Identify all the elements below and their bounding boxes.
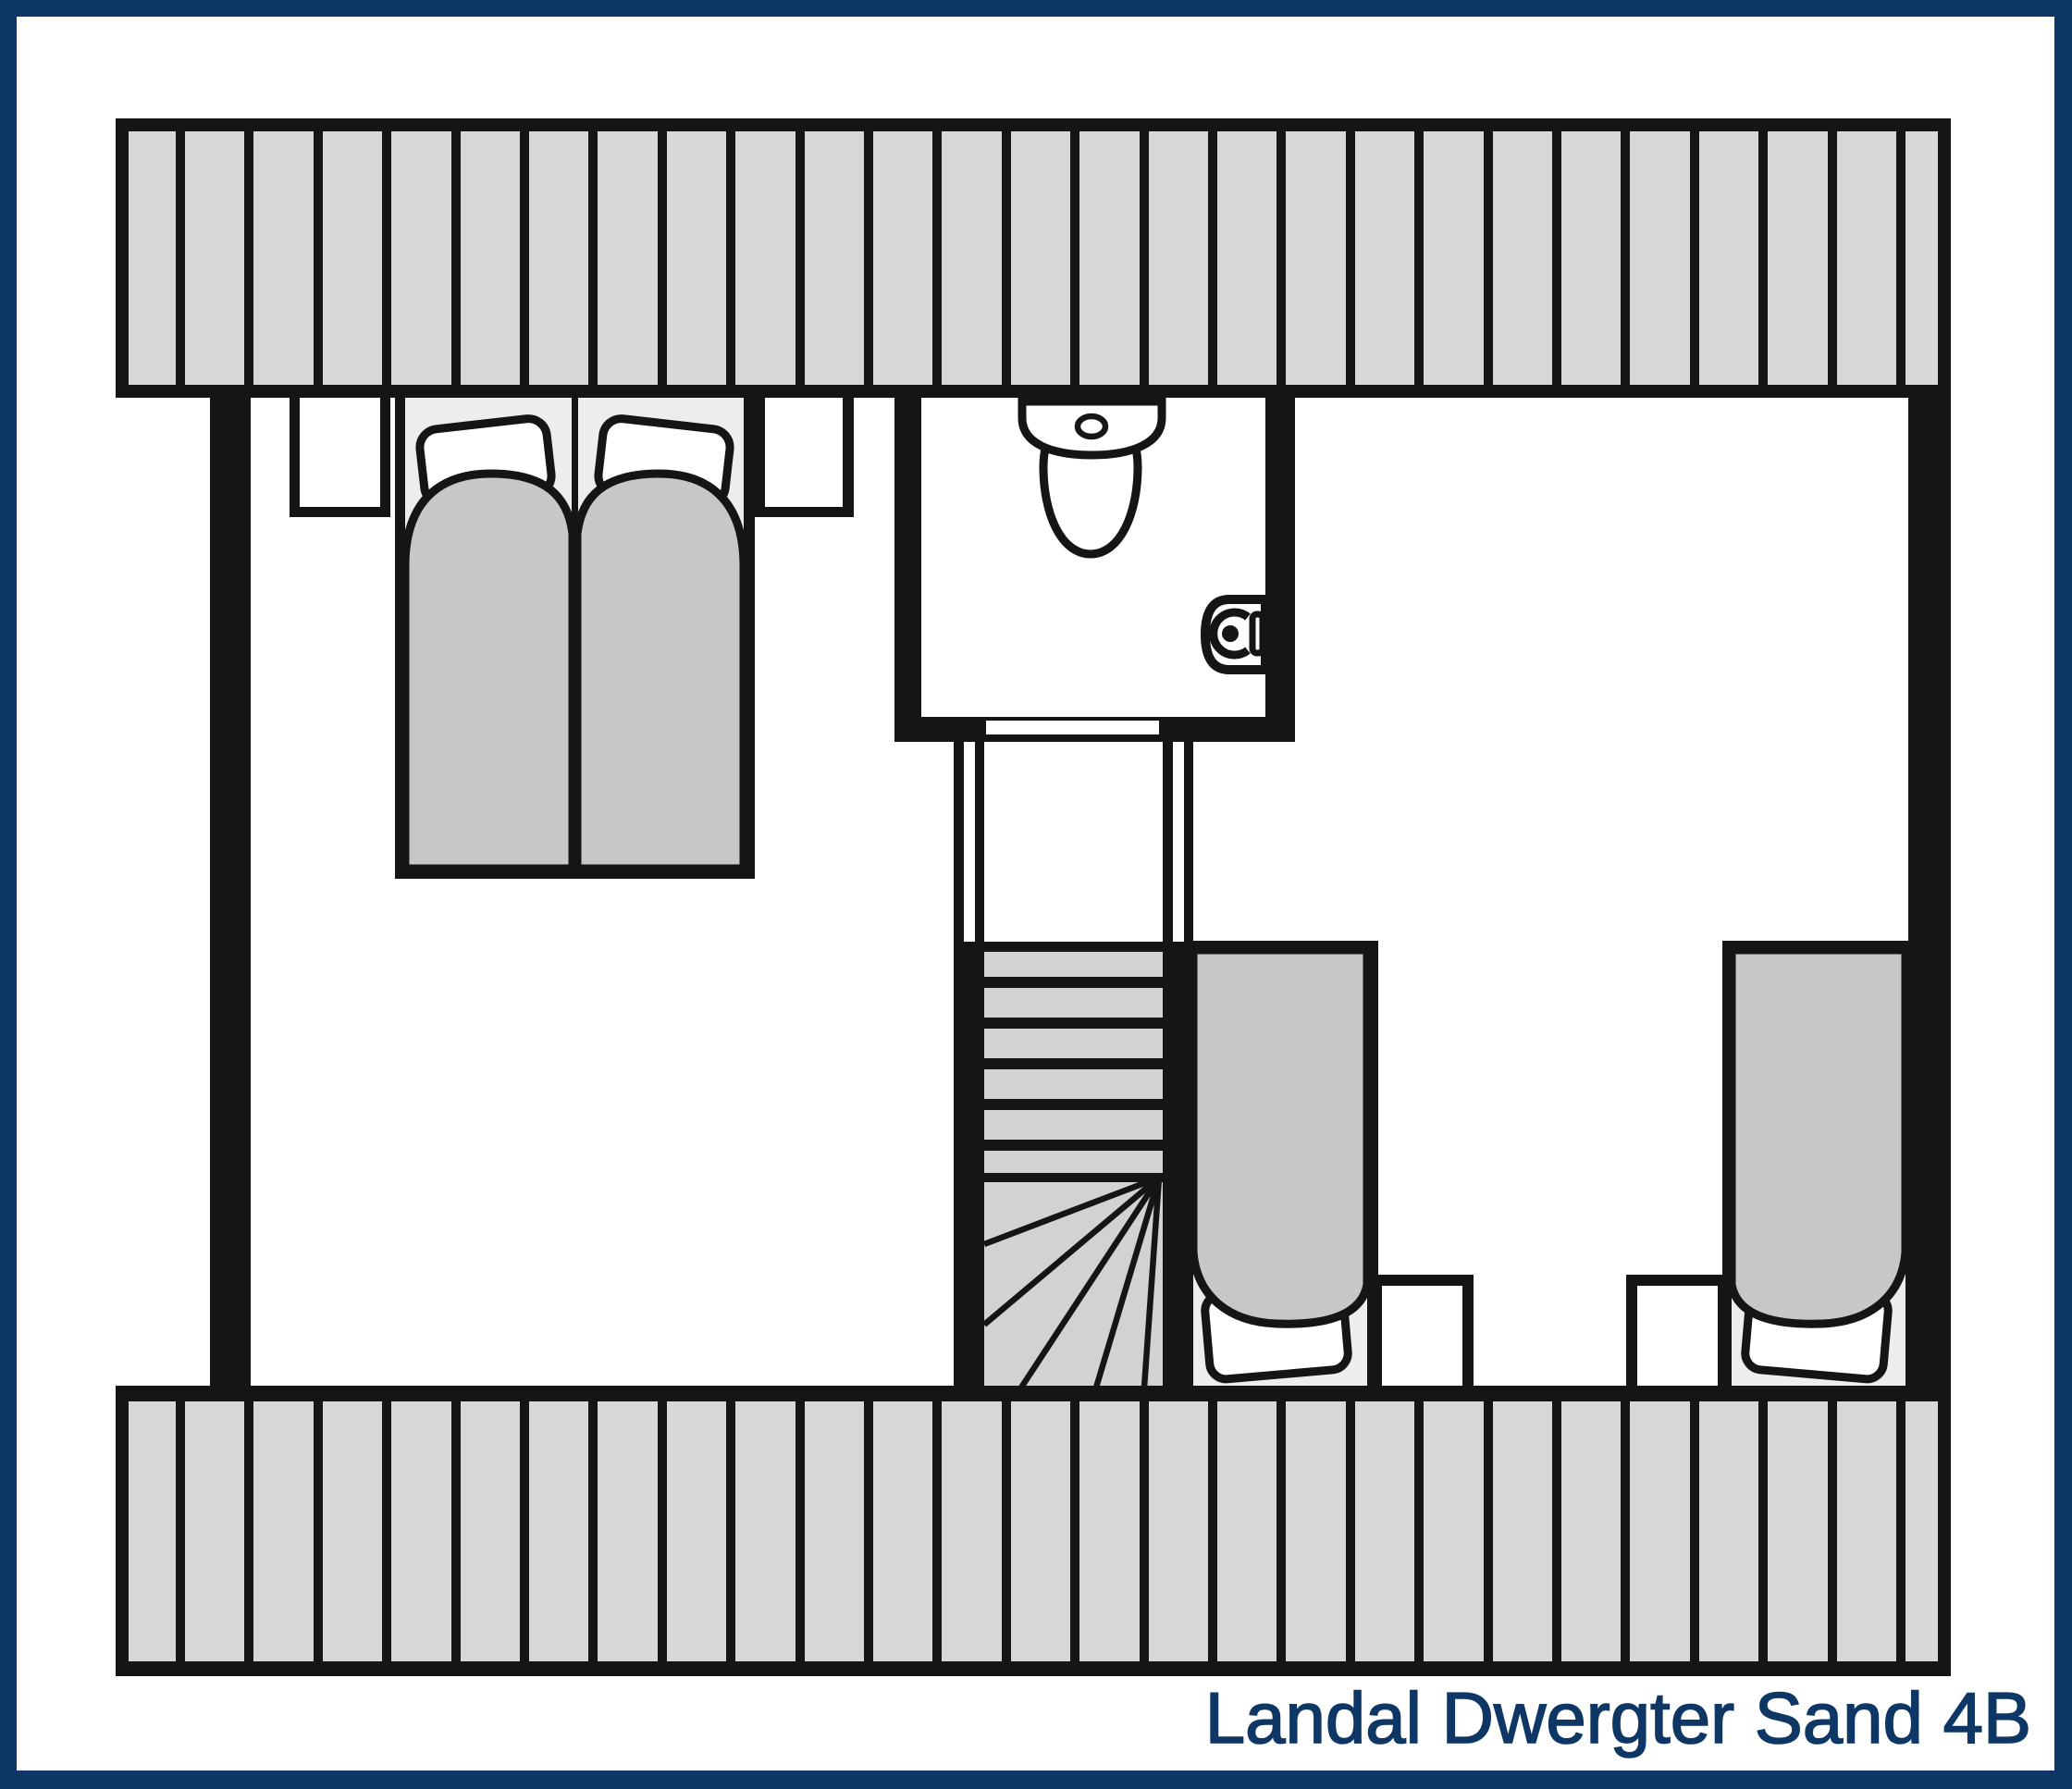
svg-text:Landal Dwergter Sand 4B: Landal Dwergter Sand 4B	[1205, 1677, 2031, 1758]
